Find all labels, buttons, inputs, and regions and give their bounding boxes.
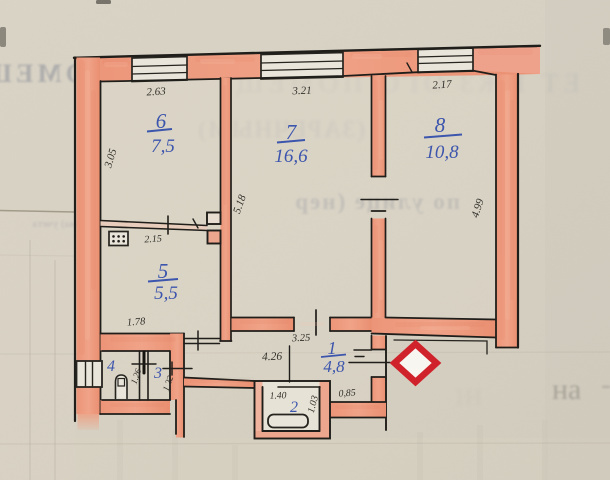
svg-text:ıн: ıн bbox=[455, 376, 483, 413]
svg-text:4.26: 4.26 bbox=[262, 351, 283, 364]
svg-text:2.17: 2.17 bbox=[432, 78, 453, 91]
svg-text:2: 2 bbox=[290, 399, 298, 416]
svg-text:на: на bbox=[552, 373, 581, 406]
svg-text:ОМЕЩА: ОМЕЩА bbox=[0, 59, 86, 88]
svg-text:16,6: 16,6 bbox=[274, 146, 308, 167]
svg-text:-: - bbox=[601, 368, 610, 401]
svg-text:3: 3 bbox=[153, 365, 162, 382]
svg-text:1.78: 1.78 bbox=[127, 316, 147, 328]
svg-text:3.25: 3.25 bbox=[291, 333, 311, 345]
svg-text:8: 8 bbox=[435, 113, 446, 137]
svg-text:1.40: 1.40 bbox=[269, 390, 286, 402]
svg-text:4,8: 4,8 bbox=[323, 357, 345, 376]
svg-text:5,5: 5,5 bbox=[154, 283, 178, 304]
svg-text:0,85: 0,85 bbox=[338, 387, 356, 399]
svg-text:2.63: 2.63 bbox=[146, 85, 166, 98]
svg-text:3.21: 3.21 bbox=[291, 85, 312, 98]
svg-text:10,8: 10,8 bbox=[425, 142, 459, 163]
svg-text:7,5: 7,5 bbox=[151, 136, 175, 157]
svg-text:2.15: 2.15 bbox=[144, 234, 162, 246]
svg-text:4: 4 bbox=[107, 358, 115, 375]
